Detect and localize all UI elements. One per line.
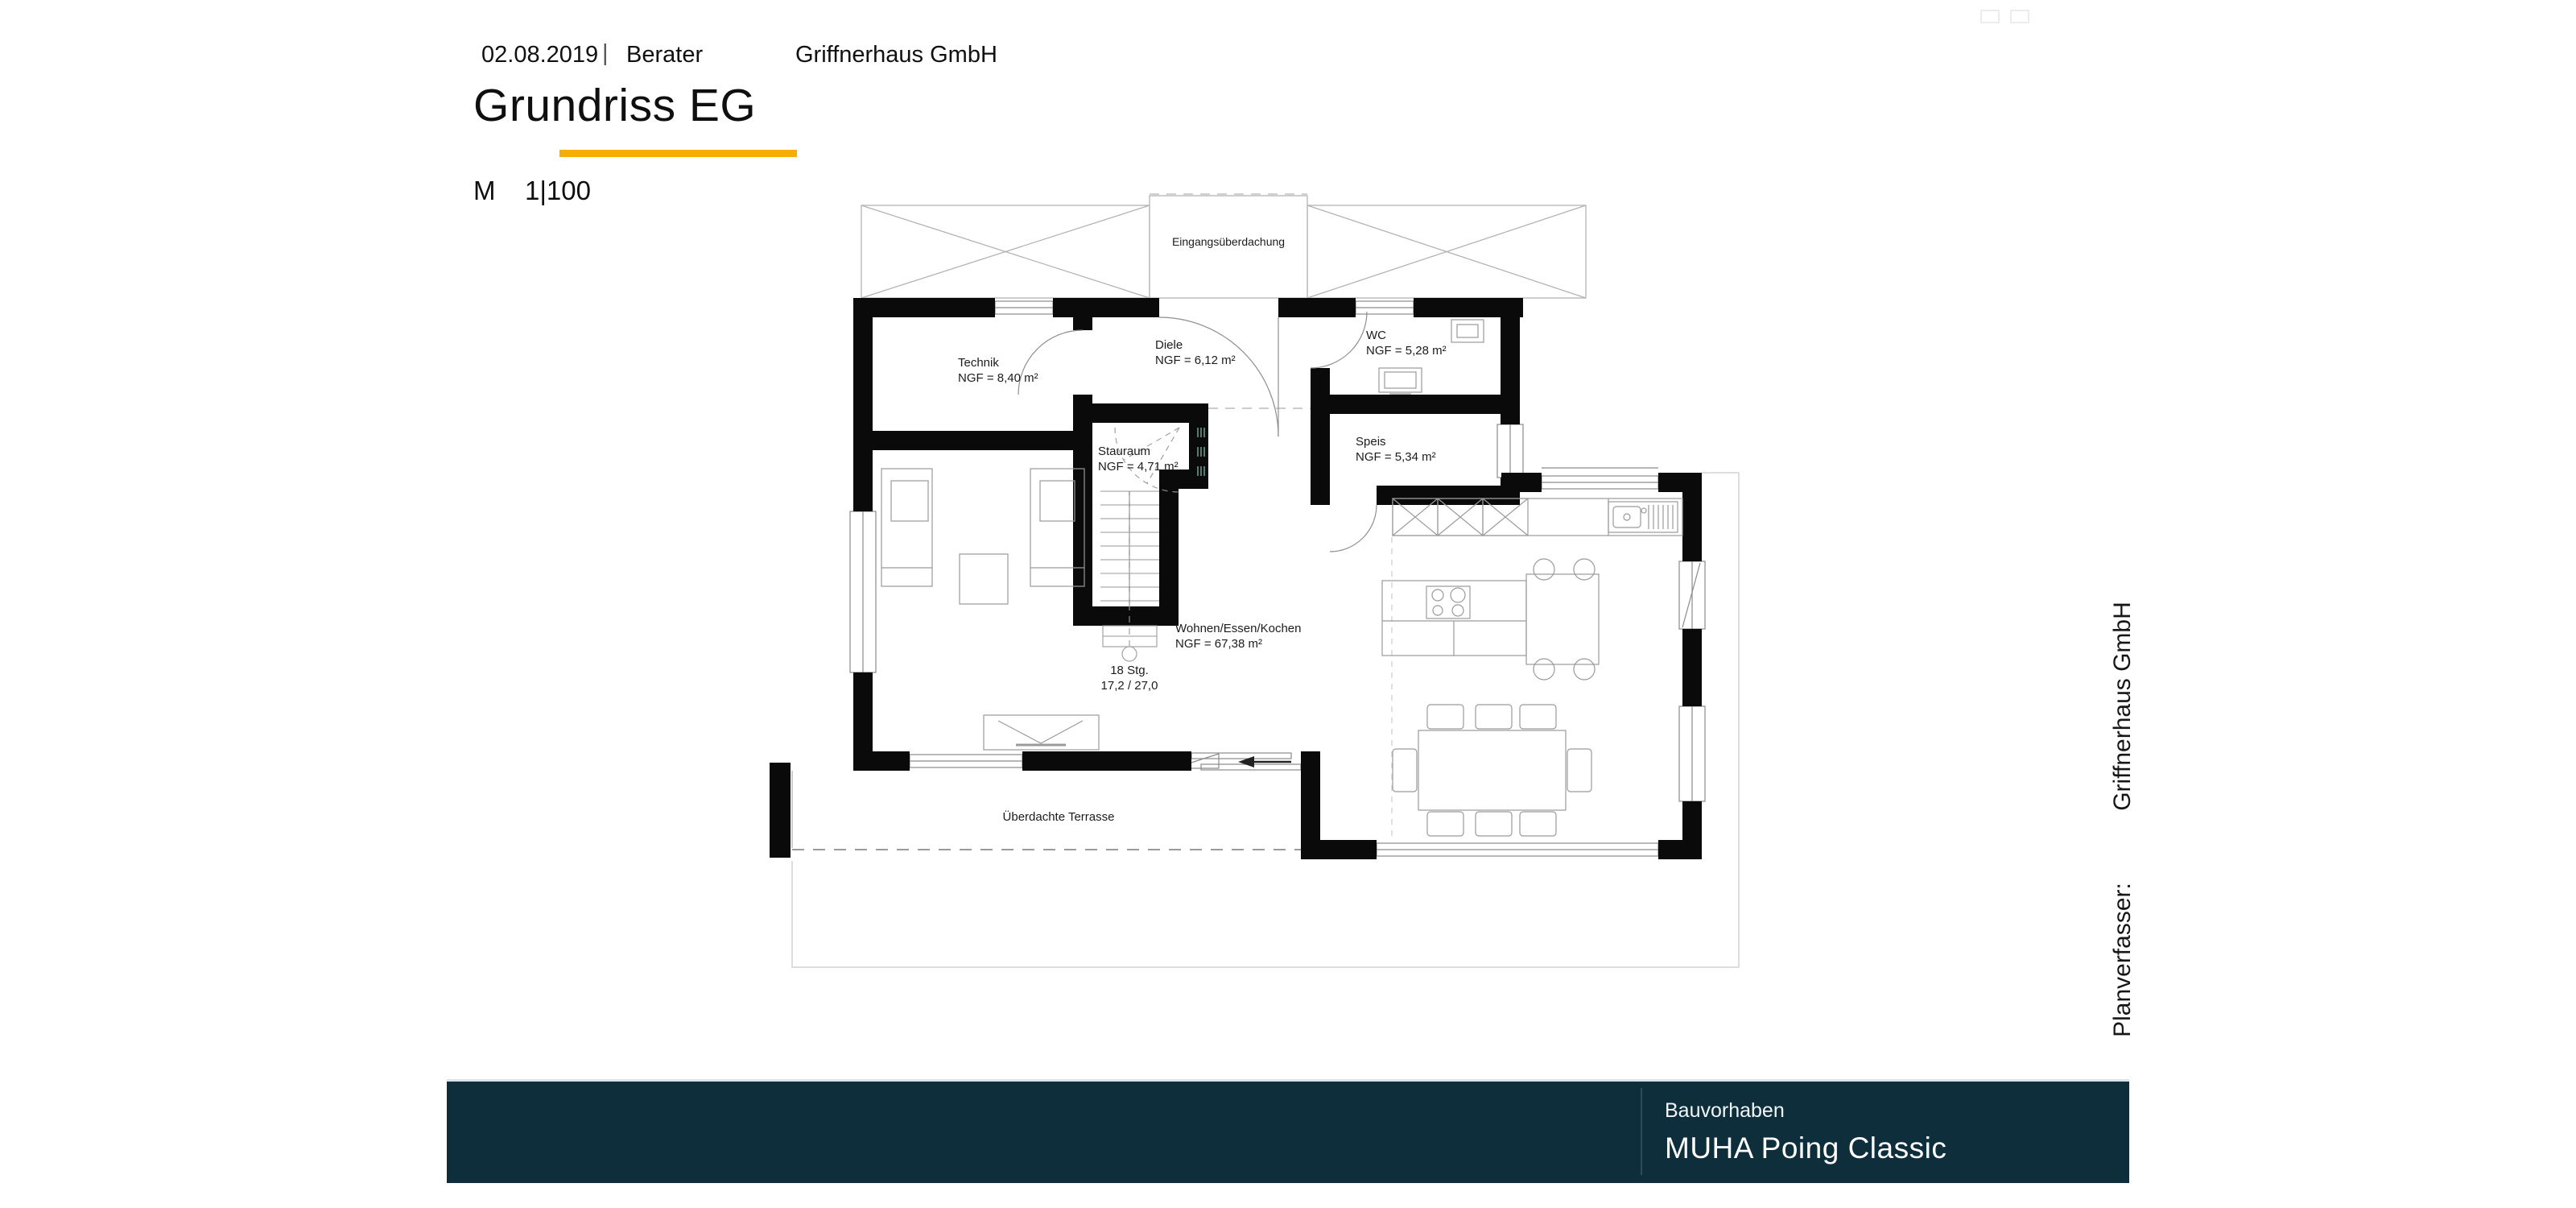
scale-value: 1|100 xyxy=(525,176,591,206)
roof-outline xyxy=(792,473,1739,967)
room-label-speis: Speis NGF = 5,34 m² xyxy=(1356,434,1436,465)
document-page: 02.08.2019 | Berater Griffnerhaus GmbH G… xyxy=(0,0,2576,1208)
floor-plan-drawing xyxy=(757,189,1787,1019)
document-date: 02.08.2019 xyxy=(481,42,598,68)
terrace-label: Überdachte Terrasse xyxy=(966,809,1151,825)
terrace-post xyxy=(770,763,791,858)
footer-divider xyxy=(1641,1088,1642,1175)
faint-artifact-icon xyxy=(1980,10,2000,23)
room-label-wc: WC NGF = 5,28 m² xyxy=(1366,328,1447,358)
project-label: Bauvorhaben xyxy=(1665,1099,1785,1123)
dining-set xyxy=(1393,705,1591,836)
company-name-vertical: Griffnerhaus GmbH xyxy=(2109,545,2136,867)
title-accent-rule xyxy=(559,150,797,157)
kitchen-sink xyxy=(1608,502,1678,532)
floor-plan: Eingangsüberdachung Technik NGF = 8,40 m… xyxy=(757,189,1787,1019)
faint-artifact-icon xyxy=(2010,10,2029,23)
advisor-label: Berater xyxy=(626,42,703,68)
living-furniture xyxy=(881,469,1099,750)
project-name: MUHA Poing Classic xyxy=(1665,1131,1946,1165)
company-name-header: Griffnerhaus GmbH xyxy=(795,42,997,68)
project-footer-bar: Bauvorhaben MUHA Poing Classic xyxy=(447,1079,2129,1183)
plan-author-label: Planverfasser: xyxy=(2109,839,2136,1081)
scale-letter: M xyxy=(473,176,496,206)
room-label-technik: Technik NGF = 8,40 m² xyxy=(958,355,1038,386)
room-label-wohnen: Wohnen/Essen/Kochen NGF = 67,38 m² xyxy=(1175,621,1302,652)
tv-sideboard xyxy=(984,715,1099,750)
room-label-diele: Diele NGF = 6,12 m² xyxy=(1155,337,1236,368)
page-title: Grundriss EG xyxy=(473,79,756,132)
meta-separator: | xyxy=(602,40,609,67)
room-label-stauraum: Stauraum NGF = 4,71 m² xyxy=(1098,444,1179,474)
canopy-label: Eingangsüberdachung xyxy=(1150,234,1307,250)
kitchen-island xyxy=(1382,559,1599,680)
stairs-annotation: 18 Stg. 17,2 / 27,0 xyxy=(1085,663,1174,693)
kitchen xyxy=(1382,499,1682,838)
